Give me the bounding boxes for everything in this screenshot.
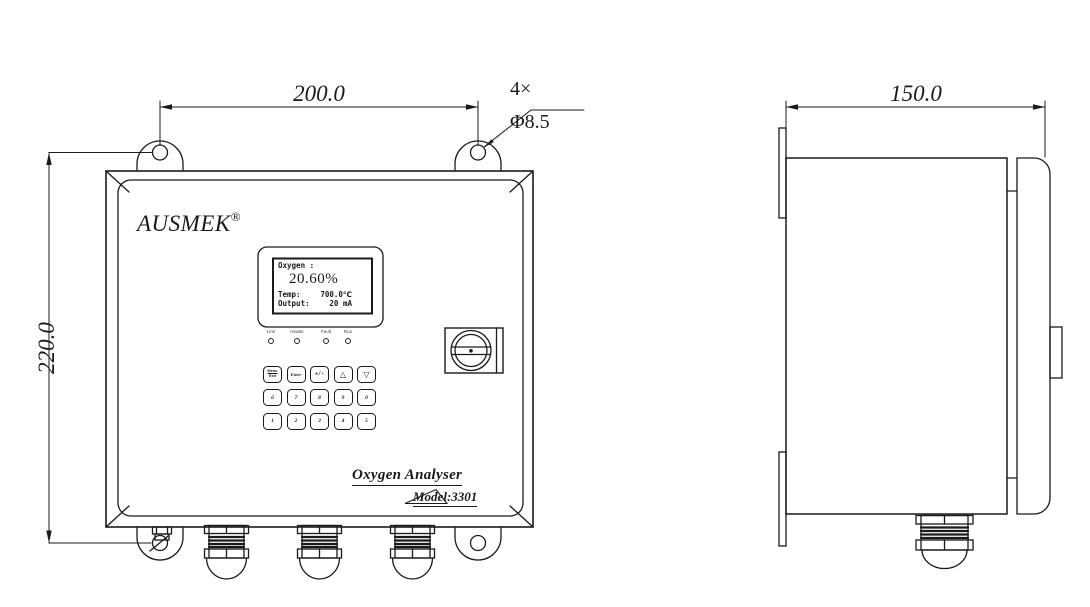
mounting-flange-top [779,128,786,218]
temp-value: 700.0℃ [320,291,352,299]
digit-label: 2 [295,418,298,424]
vent-plug [153,527,172,540]
menu-exit-key: Menu Exit [263,366,282,383]
dim-mounting-width-text: 200.0 [259,81,379,107]
panel-lock [445,328,503,373]
oxygen-reading: 20.60% [289,271,338,288]
digit-key-3: 3 [310,413,329,430]
oxygen-label: Oxygen : [278,262,314,270]
hole-count-text: 4× [510,78,531,101]
plus-minus-key-label: +/- [315,371,324,377]
led-label-heater: Heater [290,330,304,335]
product-name: Oxygen Analyser [352,467,462,486]
mounting-flange-bottom [779,452,786,546]
dim-body-depth-text: 150.0 [856,81,976,107]
digit-label: 7 [295,395,298,401]
digit-label: 6 [271,395,274,401]
dimension-mounting-width [160,101,478,145]
led-label-run: Run [344,330,352,335]
mounting-hole [153,145,168,160]
digit-key-0: 0 [357,389,376,406]
digit-key-4: 4 [334,413,353,430]
hole-diameter-text: Φ8.5 [510,111,550,134]
mounting-hole [471,145,486,160]
side-latch [1050,327,1062,378]
up-triangle-icon: △ [340,370,346,379]
hinge-marks [1007,191,1017,478]
digit-label: 1 [271,418,274,424]
digit-label: 8 [318,395,321,401]
temp-label: Temp: [278,291,301,299]
led-fault-indicator [323,338,329,344]
brand-logo: AUSMEK® [137,211,241,237]
enter-key: Enter [287,366,306,383]
cable-gland-1 [205,526,249,580]
digit-label: 0 [365,395,368,401]
cable-gland-3 [391,526,435,580]
led-link-indicator [268,338,274,344]
led-run-indicator [345,338,351,344]
enter-key-label: Enter [291,372,302,377]
led-label-fault: Fault [321,330,331,335]
digit-key-9: 9 [334,389,353,406]
side-body-outline [786,158,1007,514]
digit-label: 3 [318,418,321,424]
cable-gland-2 [298,526,342,580]
digit-key-1: 1 [263,413,282,430]
output-label: Output: [278,300,310,308]
led-heater-indicator [294,338,300,344]
digit-label: 4 [342,418,345,424]
exit-key-label: Exit [269,374,276,379]
digit-key-6: 6 [263,389,282,406]
side-view [779,128,1062,569]
model-number: Model:3301 [413,489,477,507]
up-arrow-key: △ [334,366,353,383]
digit-label: 5 [365,418,368,424]
plus-minus-key: +/- [310,366,329,383]
registered-mark: ® [231,209,241,224]
lcd-screen: Oxygen : 20.60% Temp: 700.0℃ Output: 20 … [273,258,372,314]
digit-key-5: 5 [357,413,376,430]
brand-name: AUSMEK [137,211,231,236]
mounting-hole [471,536,486,551]
digit-key-7: 7 [287,389,306,406]
side-cable-gland [916,516,973,569]
digit-key-8: 8 [310,389,329,406]
output-value: 20 mA [329,300,352,308]
digit-label: 9 [342,395,345,401]
front-view [106,141,533,579]
dimension-body-depth [786,101,1045,157]
digit-key-2: 2 [287,413,306,430]
mounting-ear-bottom-right [455,527,501,560]
side-door-outline [1017,158,1050,514]
led-label-link: Link [267,330,275,335]
down-triangle-icon: ▽ [363,370,369,379]
down-arrow-key: ▽ [357,366,376,383]
technical-drawing: 200.0 4× Φ8.5 220.0 150.0 AUSMEK® Oxygen… [0,0,1090,607]
dim-body-height-text: 220.0 [34,288,58,408]
